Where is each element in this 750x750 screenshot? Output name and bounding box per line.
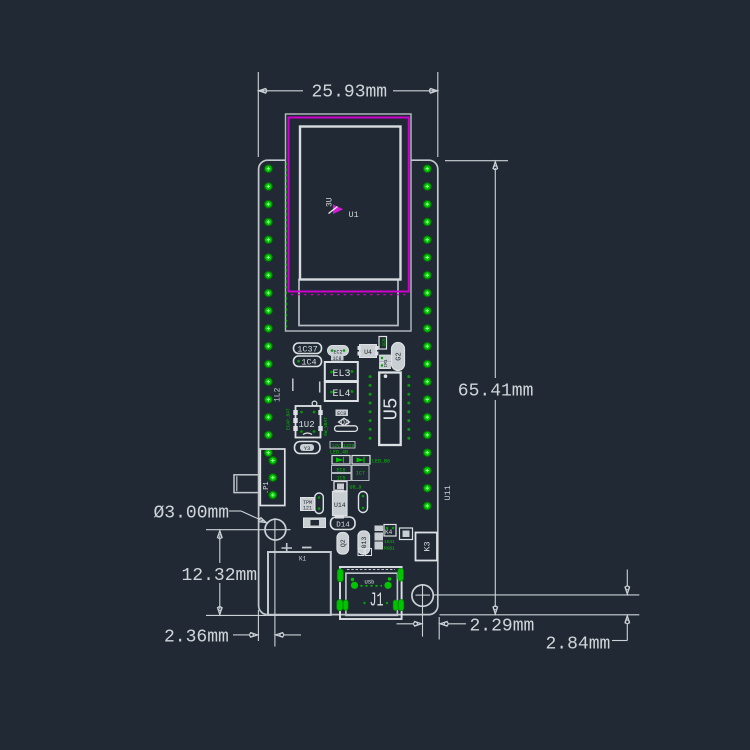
svg-text:RGB1: RGB1 xyxy=(384,546,395,552)
svg-text:D14: D14 xyxy=(336,522,350,530)
svg-text:K4: K4 xyxy=(385,529,393,536)
svg-text:12C9: 12C9 xyxy=(343,443,354,449)
svg-text:U11: U11 xyxy=(443,485,453,500)
svg-text:1C4: 1C4 xyxy=(301,358,316,368)
svg-text:121: 121 xyxy=(303,506,312,512)
svg-text:K3: K3 xyxy=(423,541,433,551)
svg-text:2.36mm: 2.36mm xyxy=(164,628,229,648)
svg-text:LED_B6: LED_B6 xyxy=(372,459,390,465)
svg-text:G2: G2 xyxy=(396,352,404,360)
svg-text:013: 013 xyxy=(361,537,368,549)
svg-text:EL4: EL4 xyxy=(332,389,350,400)
svg-text:12.32mm: 12.32mm xyxy=(182,566,258,586)
svg-text:U5: U5 xyxy=(380,398,402,421)
svg-text:Q2: Q2 xyxy=(340,539,347,547)
svg-text:1U2: 1U2 xyxy=(298,420,314,430)
svg-text:SW_VBAT: SW_VBAT xyxy=(323,417,329,436)
svg-text:EC8: EC8 xyxy=(337,411,346,417)
svg-text:1C37: 1C37 xyxy=(297,344,317,354)
svg-text:Ø3.00mm: Ø3.00mm xyxy=(154,504,230,524)
svg-text:1C7: 1C7 xyxy=(356,471,365,477)
svg-text:.P1: .P1 xyxy=(263,481,271,494)
svg-text:EC2: EC2 xyxy=(333,350,342,356)
svg-text:U4: U4 xyxy=(364,349,372,356)
svg-text:IM1: IM1 xyxy=(383,359,389,367)
svg-text:2.29mm: 2.29mm xyxy=(470,617,535,637)
svg-text:LED_4B: LED_4B xyxy=(330,450,348,456)
svg-text:65.41mm: 65.41mm xyxy=(458,382,534,402)
svg-text:2.84mm: 2.84mm xyxy=(546,635,611,655)
svg-text:1L2: 1L2 xyxy=(274,387,283,402)
svg-text:USb: USb xyxy=(365,579,375,586)
svg-text:EC6: EC6 xyxy=(336,467,345,473)
svg-text:1K41: 1K41 xyxy=(384,539,395,545)
svg-text:K1: K1 xyxy=(299,556,307,563)
svg-text:1C5: 1C5 xyxy=(336,475,345,481)
svg-text:U1: U1 xyxy=(349,210,359,220)
svg-text:Y3: Y3 xyxy=(304,445,311,452)
svg-text:25.93mm: 25.93mm xyxy=(312,83,388,103)
svg-text:U14: U14 xyxy=(334,502,346,509)
svg-text:1C6: 1C6 xyxy=(381,338,387,346)
svg-text:ECAP_BAT: ECAP_BAT xyxy=(286,408,292,430)
svg-text:J1: J1 xyxy=(369,590,383,612)
svg-text:EL3: EL3 xyxy=(332,369,350,380)
svg-text:12V: 12V xyxy=(332,443,340,449)
svg-text:U8_a: U8_a xyxy=(350,485,362,491)
